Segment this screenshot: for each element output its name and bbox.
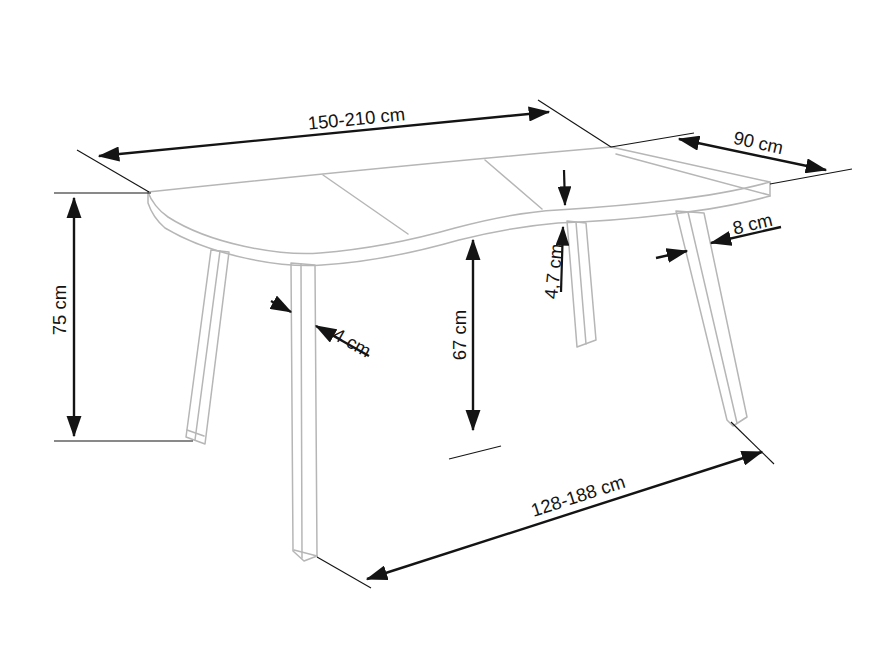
table-dimension-diagram: 150-210 cm 90 cm 75 cm 67 cm 4,7 cm: [0, 0, 891, 668]
dimension-leg-width-top: 8 cm: [656, 209, 781, 258]
dimension-top-length: 150-210 cm: [77, 100, 611, 192]
witness-line: [317, 557, 371, 588]
dimension-arrow: [656, 251, 687, 258]
leg-back-right: [567, 221, 596, 347]
top-depth-label: 90 cm: [732, 127, 786, 158]
leg-width-top-label: 8 cm: [731, 209, 775, 239]
witness-line: [731, 422, 774, 464]
clearance-label: 67 cm: [449, 310, 470, 360]
tabletop-seam-left: [323, 175, 408, 234]
height-label: 75 cm: [49, 285, 70, 335]
leg-back-left: [186, 250, 229, 444]
witness-line: [77, 150, 149, 192]
leg-front-left: [291, 263, 317, 561]
dimension-arrow: [271, 301, 291, 312]
top-thickness-label: 4,7 cm: [540, 243, 567, 300]
witness-line: [538, 100, 611, 147]
dimension-arrow: [564, 170, 565, 205]
dimension-height: 75 cm: [49, 193, 193, 441]
top-length-label: 150-210 cm: [307, 103, 406, 134]
floor-tick: [449, 446, 501, 459]
witness-line: [770, 169, 852, 184]
dimension-clearance: 67 cm: [449, 240, 501, 459]
tabletop-top-face: [148, 147, 770, 253]
dimension-leg-width-bottom: 4 cm: [271, 301, 375, 361]
leg-edge: [576, 222, 586, 344]
tabletop-right-edge-band: [616, 154, 769, 195]
diagram-canvas: 150-210 cm 90 cm 75 cm 67 cm 4,7 cm: [0, 0, 891, 668]
dimension-arrow: [367, 452, 762, 579]
leg-outline: [291, 263, 317, 561]
leg-edge: [301, 264, 302, 558]
leg-span-label: 128-188 cm: [528, 471, 627, 521]
tabletop-seam-right: [485, 160, 542, 209]
dimension-leg-span: 128-188 cm: [317, 422, 774, 588]
dimension-top-thickness: 4,7 cm: [540, 170, 567, 300]
